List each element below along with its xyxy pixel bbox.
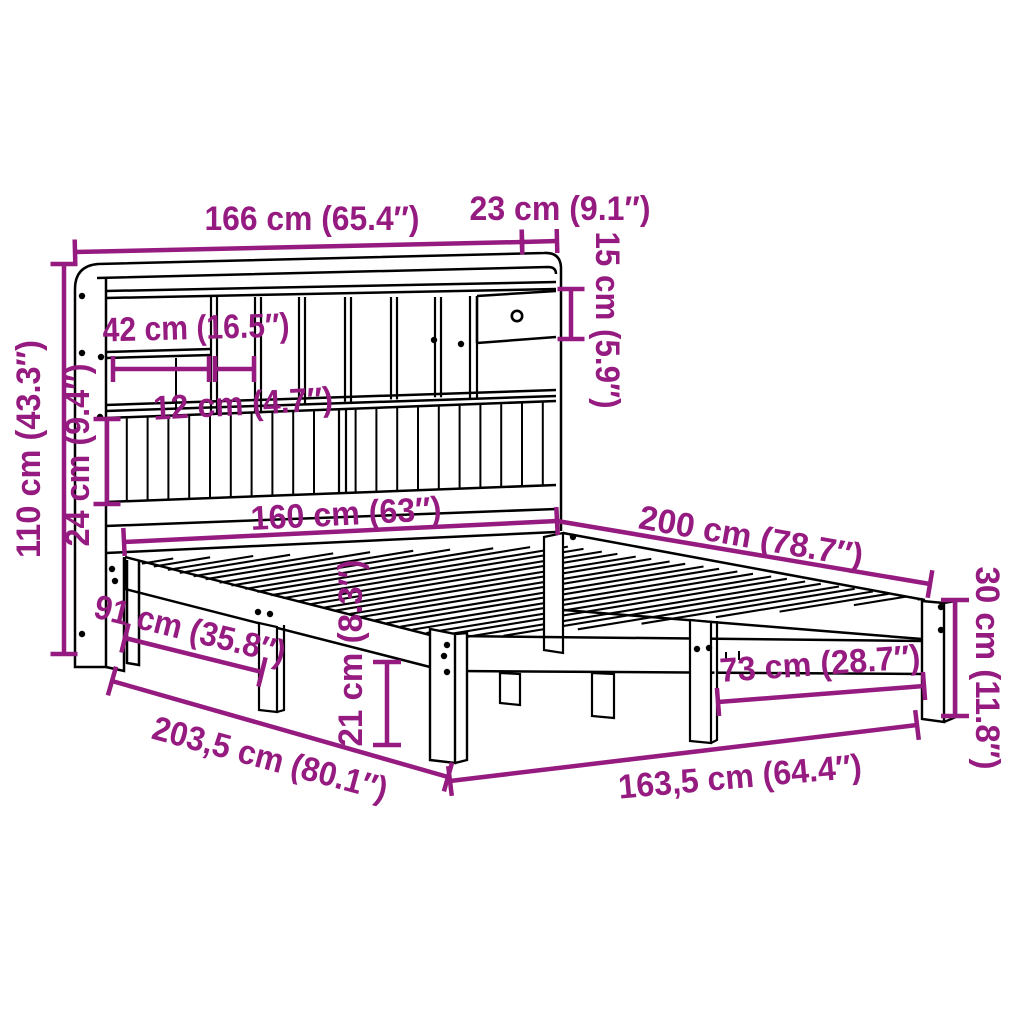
svg-text:30 cm (11.8″): 30 cm (11.8″) bbox=[968, 567, 1006, 770]
svg-text:21 cm (8.3″): 21 cm (8.3″) bbox=[332, 560, 370, 747]
svg-text:23 cm (9.1″): 23 cm (9.1″) bbox=[470, 190, 651, 228]
svg-text:110 cm (43.3″): 110 cm (43.3″) bbox=[10, 340, 48, 558]
svg-text:15 cm (5.9″): 15 cm (5.9″) bbox=[588, 232, 626, 409]
svg-text:42 cm (16.5″): 42 cm (16.5″) bbox=[102, 307, 290, 350]
svg-text:166 cm (65.4″): 166 cm (65.4″) bbox=[205, 200, 420, 238]
